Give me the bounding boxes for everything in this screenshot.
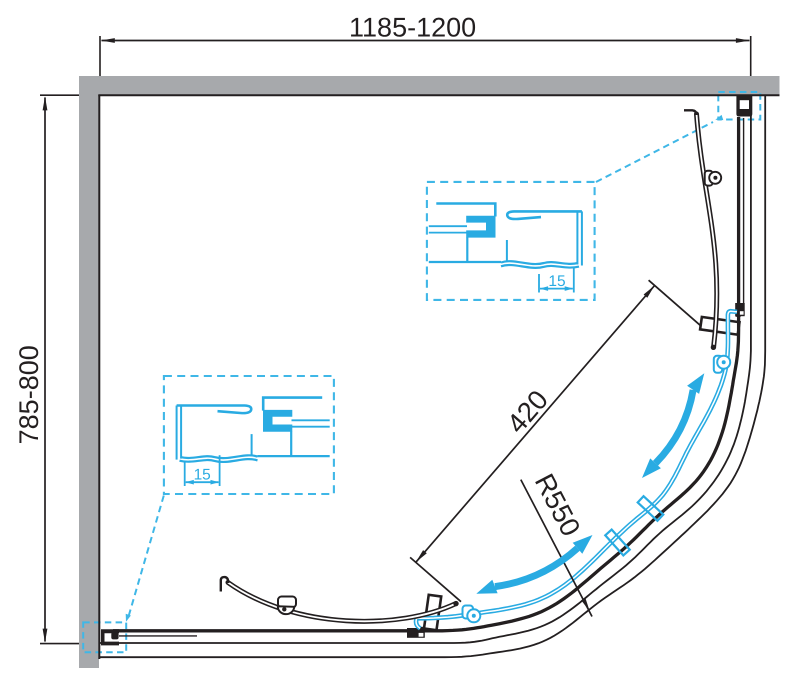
svg-text:15: 15 — [194, 467, 211, 484]
svg-text:15: 15 — [548, 273, 565, 290]
svg-text:1185-1200: 1185-1200 — [349, 12, 476, 42]
svg-text:785-800: 785-800 — [14, 345, 44, 444]
